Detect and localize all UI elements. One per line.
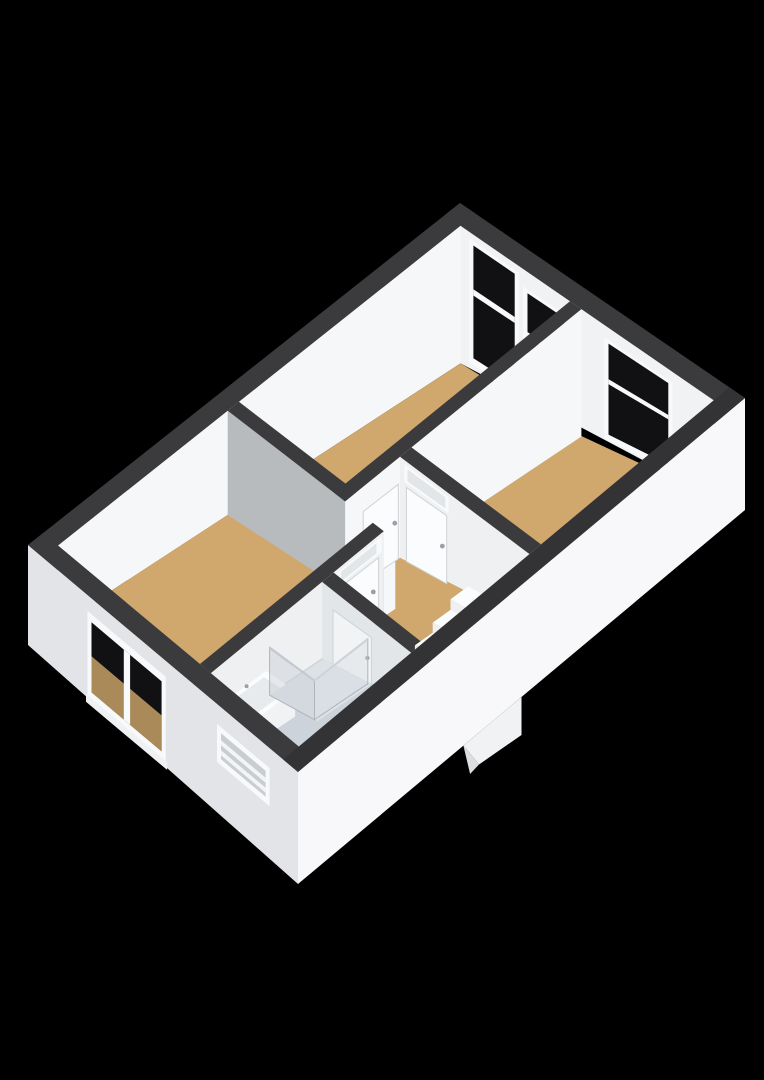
door-handle	[392, 521, 397, 526]
sink-faucet	[245, 684, 249, 688]
window-mullion	[124, 650, 130, 725]
floorplan-canvas	[0, 0, 764, 1080]
door-handle	[371, 590, 376, 595]
floorplan-3d-view	[0, 0, 764, 1080]
door-handle	[440, 544, 445, 549]
